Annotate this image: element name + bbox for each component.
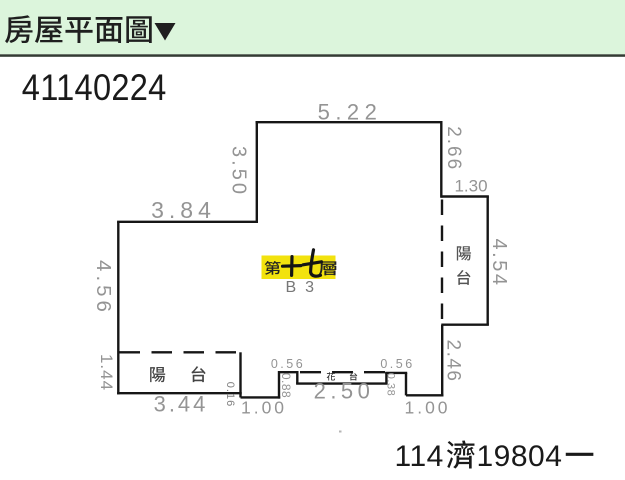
svg-text:41140224: 41140224 <box>22 67 167 109</box>
svg-text:B3: B3 <box>286 279 324 296</box>
svg-text:1.00: 1.00 <box>241 398 287 418</box>
svg-text:0.88: 0.88 <box>279 373 293 398</box>
svg-text:2.66: 2.66 <box>443 126 464 171</box>
svg-text:3.50: 3.50 <box>227 146 249 197</box>
svg-text:4.54: 4.54 <box>488 239 510 288</box>
svg-text:5.22: 5.22 <box>318 100 383 125</box>
svg-text:1.44: 1.44 <box>97 354 116 391</box>
svg-text:0.16: 0.16 <box>224 382 236 407</box>
svg-text:2.50: 2.50 <box>314 379 375 404</box>
svg-text:3.84: 3.84 <box>151 197 216 223</box>
svg-text:1.00: 1.00 <box>404 398 450 418</box>
svg-text:2.46: 2.46 <box>443 340 464 383</box>
svg-text:3.44: 3.44 <box>154 392 209 417</box>
svg-text:1.30: 1.30 <box>454 177 487 196</box>
svg-text:0.38: 0.38 <box>385 373 397 396</box>
svg-text:19804: 19804 <box>477 440 563 473</box>
svg-text:114: 114 <box>395 440 444 473</box>
svg-text:0.56: 0.56 <box>271 357 305 371</box>
svg-text:0.56: 0.56 <box>380 357 414 371</box>
svg-text:4.56: 4.56 <box>92 260 115 316</box>
